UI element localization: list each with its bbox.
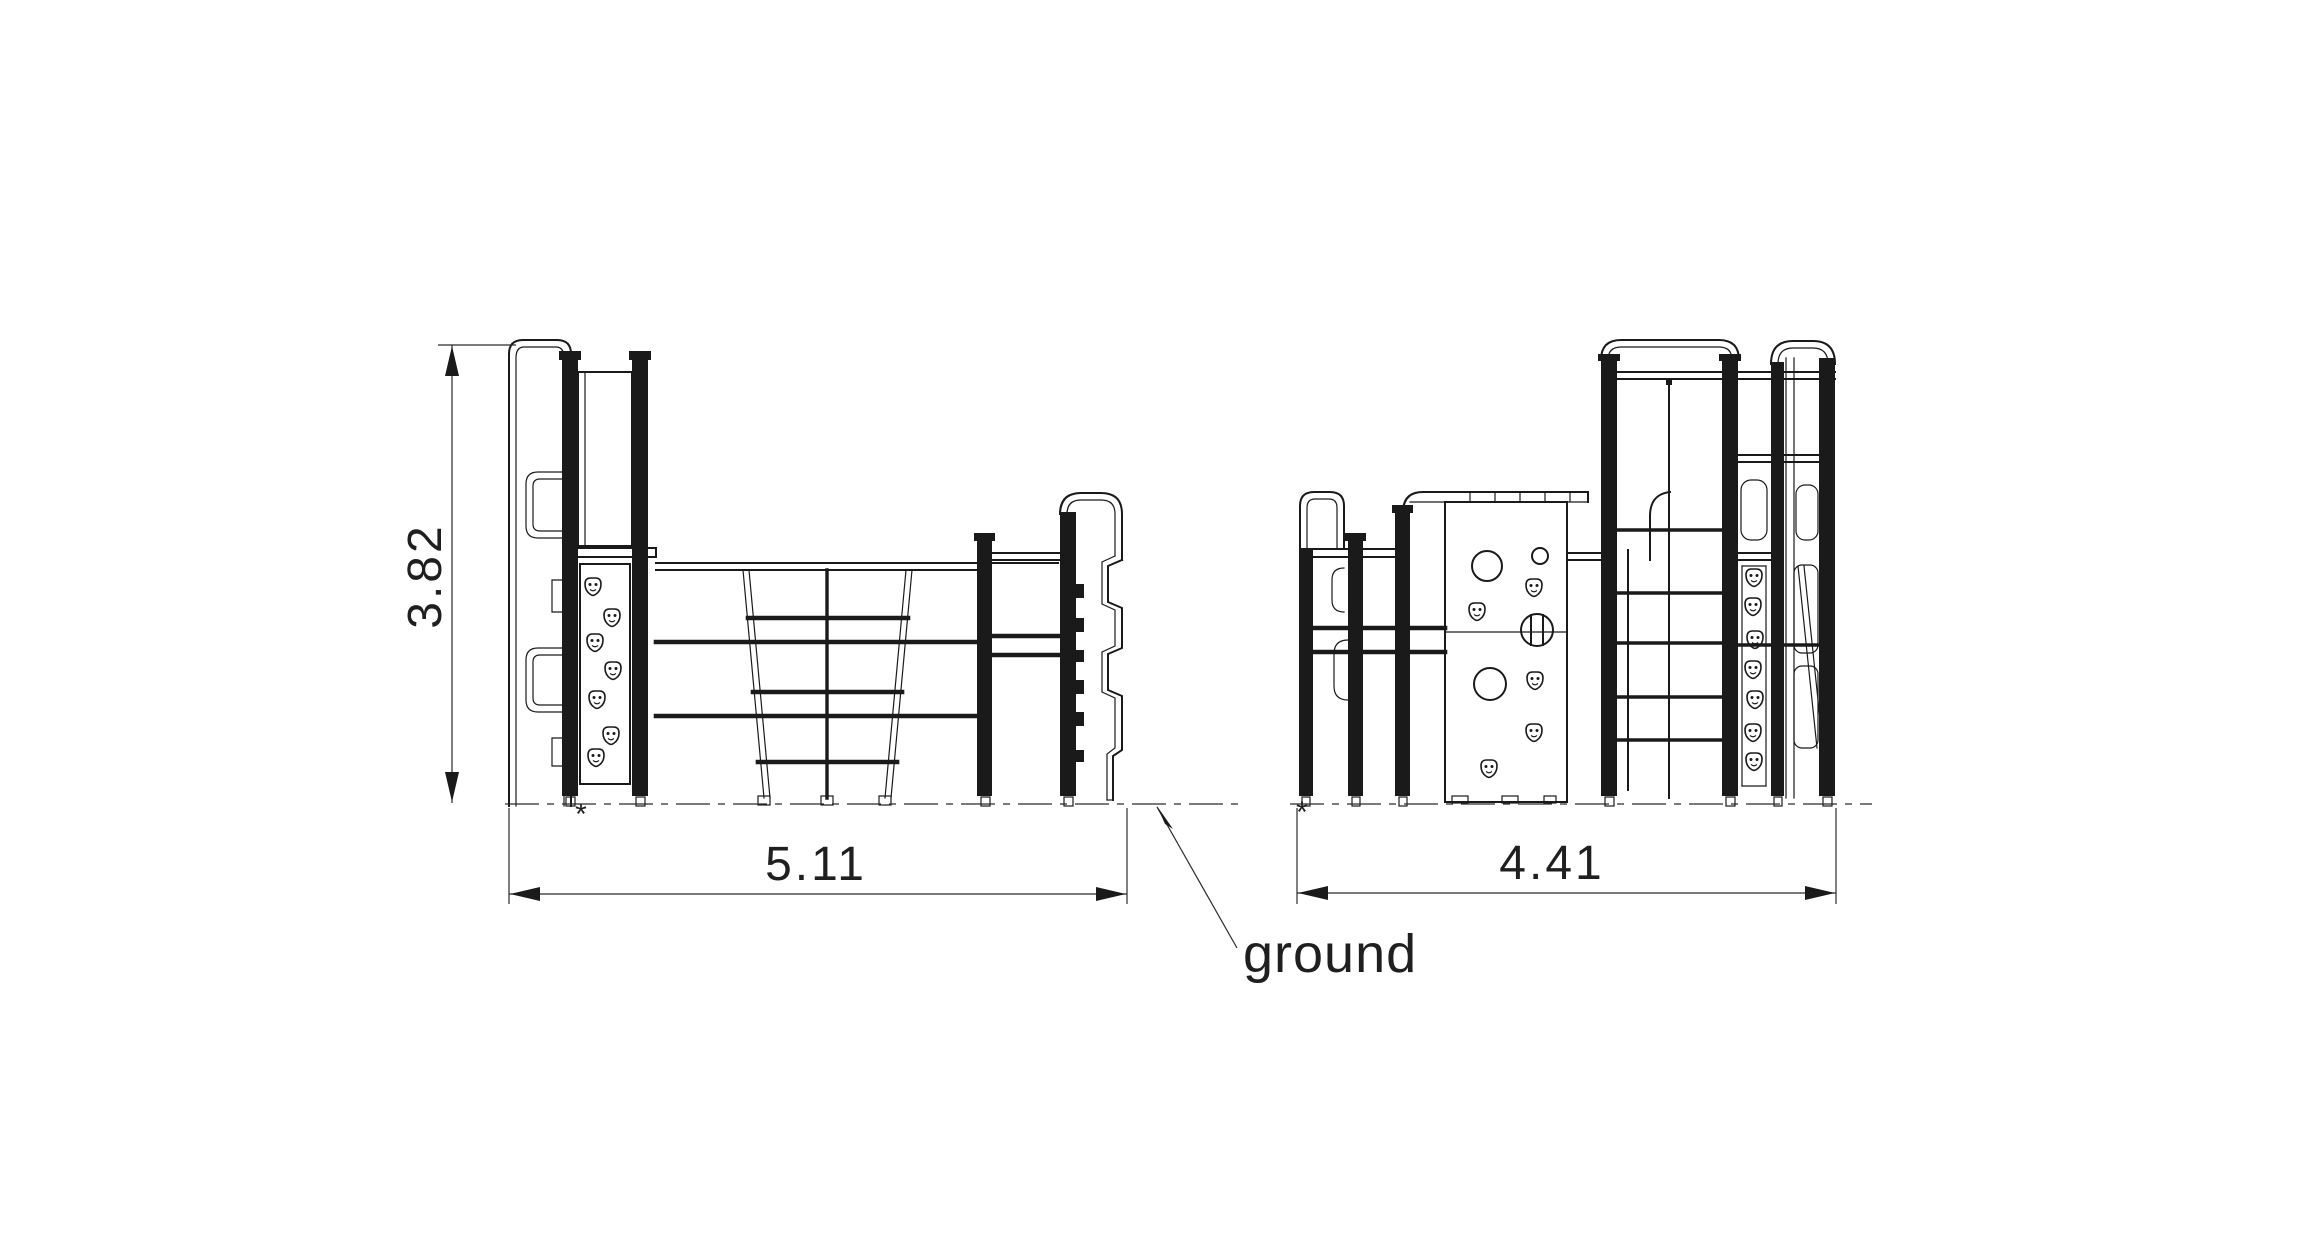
width-dimension-label: 4.41 <box>1499 837 1604 890</box>
support-posts <box>559 351 1076 806</box>
trapezoid-climber <box>743 570 912 805</box>
small-circle <box>1532 548 1548 564</box>
side-elevation-view: * <box>509 340 1122 831</box>
climbing-hold-strip <box>1742 566 1766 786</box>
climbing-hold-icon <box>589 691 605 708</box>
playground-elevation-drawing: * <box>0 0 2304 1250</box>
climbing-hold-icon <box>603 727 619 744</box>
climbing-hold-icon <box>1746 569 1762 586</box>
porthole-circle <box>1472 551 1502 581</box>
width-dimension-label: 5.11 <box>765 838 867 891</box>
leader-arrow-icon <box>1157 806 1173 829</box>
tall-post-frame <box>1567 340 1835 806</box>
leader-line <box>1157 807 1237 948</box>
ground-callout: ground <box>1157 806 1417 984</box>
climbing-hold-icon <box>1469 603 1485 620</box>
climbing-hold-icon <box>588 749 604 766</box>
climbing-hold-icon <box>605 662 621 679</box>
climbing-hold-icon <box>1745 598 1761 615</box>
left-post-cluster <box>1299 492 1445 806</box>
climbing-hold-icon <box>1526 724 1542 741</box>
activity-panel <box>1445 502 1567 803</box>
climbing-hold-icon <box>1745 724 1761 741</box>
height-dimension: 3.82 <box>399 345 516 803</box>
climbing-hold-icon <box>1747 691 1763 708</box>
right-post-cluster <box>1739 341 1835 806</box>
climbing-hold-icon <box>1526 579 1542 596</box>
climbing-wall-panel <box>580 564 630 784</box>
cad-drawing-canvas: * <box>0 0 2304 1250</box>
climbing-hold-icon <box>1745 661 1761 678</box>
end-elevation-view: * <box>1296 340 1835 829</box>
climbing-hold-icon <box>585 578 601 595</box>
width-dimension-left-view: 5.11 <box>509 808 1127 904</box>
steering-wheel-icon <box>1521 614 1553 646</box>
side-panel-with-brace <box>1794 565 1823 748</box>
climbing-hold-icon <box>604 609 620 626</box>
porthole-circle <box>1474 668 1506 700</box>
upper-panel <box>578 372 632 546</box>
right-rails <box>992 553 1060 655</box>
climbing-hold-icon <box>1746 753 1762 770</box>
dimensions: 3.82 5.11 4.41 <box>399 345 1836 904</box>
roof-edge-panel <box>509 340 571 806</box>
height-dimension-label: 3.82 <box>399 523 452 628</box>
climbing-hold-icon <box>587 634 603 651</box>
datum-mark: * <box>575 798 587 831</box>
climbing-hold-icon <box>1527 672 1543 689</box>
climbing-hold-icon <box>1481 760 1497 777</box>
datum-mark: * <box>1296 796 1308 829</box>
ground-label: ground <box>1243 924 1417 984</box>
width-dimension-right-view: 4.41 <box>1297 808 1836 904</box>
